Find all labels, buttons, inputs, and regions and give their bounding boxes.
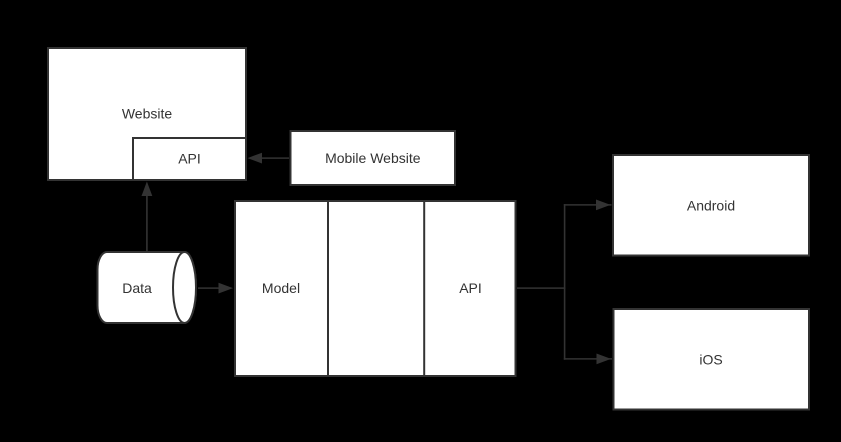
svg-text:iOS: iOS: [699, 351, 722, 367]
svg-text:API: API: [459, 280, 482, 296]
svg-text:Android: Android: [687, 197, 735, 213]
svg-text:Data: Data: [122, 280, 152, 296]
svg-text:API: API: [178, 151, 201, 167]
svg-text:Model: Model: [262, 280, 300, 296]
svg-text:Website: Website: [122, 106, 173, 122]
svg-text:Mobile Website: Mobile Website: [325, 150, 421, 166]
